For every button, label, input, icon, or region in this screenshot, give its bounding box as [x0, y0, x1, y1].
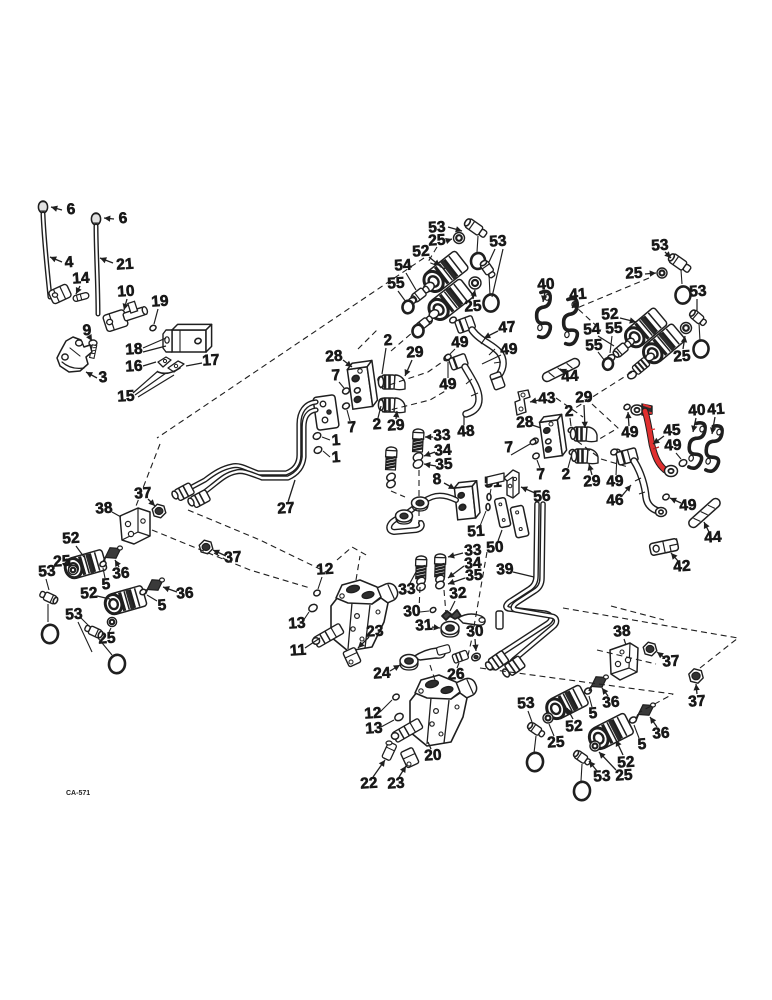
svg-text:8: 8	[432, 471, 442, 489]
svg-text:18: 18	[125, 340, 144, 358]
svg-text:29: 29	[387, 416, 406, 434]
svg-text:21: 21	[116, 255, 135, 273]
svg-text:5: 5	[588, 705, 598, 723]
svg-text:55: 55	[585, 336, 604, 354]
svg-text:10: 10	[117, 283, 135, 301]
svg-text:37: 37	[224, 549, 242, 567]
svg-text:37: 37	[662, 653, 680, 671]
svg-text:48: 48	[457, 422, 476, 440]
svg-text:53: 53	[38, 562, 57, 580]
svg-text:50: 50	[486, 539, 504, 557]
svg-text:3: 3	[98, 369, 108, 387]
svg-text:27: 27	[277, 500, 295, 518]
svg-text:16: 16	[125, 357, 144, 375]
svg-text:25: 25	[625, 264, 644, 282]
svg-text:1: 1	[331, 432, 341, 450]
svg-text:28: 28	[325, 347, 344, 365]
svg-text:30: 30	[466, 623, 484, 641]
svg-text:43: 43	[538, 389, 557, 407]
svg-text:52: 52	[62, 530, 80, 548]
svg-text:53: 53	[65, 605, 84, 623]
svg-text:25: 25	[464, 297, 483, 315]
svg-text:37: 37	[688, 693, 706, 711]
svg-text:44: 44	[704, 528, 723, 546]
svg-text:25: 25	[53, 552, 72, 570]
svg-text:47: 47	[498, 319, 516, 337]
svg-text:14: 14	[72, 269, 91, 287]
svg-text:52: 52	[412, 243, 430, 261]
svg-text:2: 2	[561, 466, 571, 484]
svg-text:40: 40	[688, 402, 706, 420]
svg-text:13: 13	[288, 614, 307, 632]
svg-text:53: 53	[517, 694, 536, 712]
svg-text:31: 31	[415, 616, 434, 634]
svg-text:6: 6	[118, 210, 128, 228]
svg-text:49: 49	[679, 496, 698, 514]
svg-text:19: 19	[151, 292, 170, 310]
svg-text:22: 22	[360, 775, 378, 793]
svg-text:32: 32	[449, 585, 467, 603]
svg-text:36: 36	[176, 584, 195, 602]
svg-text:49: 49	[606, 472, 625, 490]
svg-text:2: 2	[383, 332, 393, 350]
svg-text:40: 40	[537, 276, 555, 294]
svg-text:23: 23	[387, 774, 406, 792]
svg-text:7: 7	[536, 466, 546, 484]
svg-text:53: 53	[489, 232, 508, 250]
svg-text:53: 53	[651, 236, 670, 254]
svg-text:53: 53	[689, 282, 708, 300]
svg-text:51: 51	[467, 522, 486, 540]
svg-text:49: 49	[664, 436, 683, 454]
svg-text:15: 15	[117, 387, 136, 405]
svg-text:12: 12	[316, 561, 334, 579]
svg-text:52: 52	[565, 718, 583, 736]
svg-text:5: 5	[157, 597, 167, 615]
svg-text:4: 4	[64, 254, 74, 272]
svg-text:39: 39	[496, 560, 515, 578]
svg-text:49: 49	[500, 340, 519, 358]
svg-text:2: 2	[564, 403, 574, 421]
svg-text:41: 41	[569, 285, 588, 303]
svg-text:36: 36	[602, 693, 621, 711]
svg-text:49: 49	[439, 375, 458, 393]
svg-text:20: 20	[424, 747, 442, 765]
svg-text:42: 42	[673, 558, 691, 576]
svg-text:17: 17	[202, 352, 220, 370]
svg-text:46: 46	[606, 491, 625, 509]
svg-text:2: 2	[372, 416, 382, 434]
svg-text:24: 24	[373, 664, 392, 682]
svg-text:25: 25	[615, 766, 634, 784]
svg-text:6: 6	[66, 201, 76, 219]
svg-text:36: 36	[652, 724, 671, 742]
svg-text:25: 25	[428, 231, 447, 249]
svg-text:35: 35	[465, 566, 484, 584]
svg-text:38: 38	[95, 499, 114, 517]
svg-text:36: 36	[112, 564, 131, 582]
svg-text:25: 25	[673, 347, 692, 365]
svg-text:5: 5	[101, 576, 111, 594]
svg-text:CA-571: CA-571	[66, 790, 90, 797]
svg-text:28: 28	[516, 413, 535, 431]
svg-text:38: 38	[613, 622, 632, 640]
svg-text:1: 1	[331, 449, 341, 467]
svg-text:52: 52	[80, 585, 98, 603]
svg-text:25: 25	[547, 733, 566, 751]
svg-text:29: 29	[583, 472, 602, 490]
svg-text:49: 49	[621, 423, 640, 441]
svg-text:7: 7	[347, 419, 357, 437]
svg-text:49: 49	[451, 333, 470, 351]
svg-text:33: 33	[398, 580, 417, 598]
svg-text:13: 13	[365, 719, 384, 737]
svg-text:29: 29	[575, 388, 594, 406]
svg-text:29: 29	[406, 343, 425, 361]
svg-text:41: 41	[707, 400, 726, 418]
svg-text:55: 55	[605, 319, 624, 337]
svg-text:5: 5	[637, 736, 647, 754]
svg-text:11: 11	[289, 642, 307, 660]
